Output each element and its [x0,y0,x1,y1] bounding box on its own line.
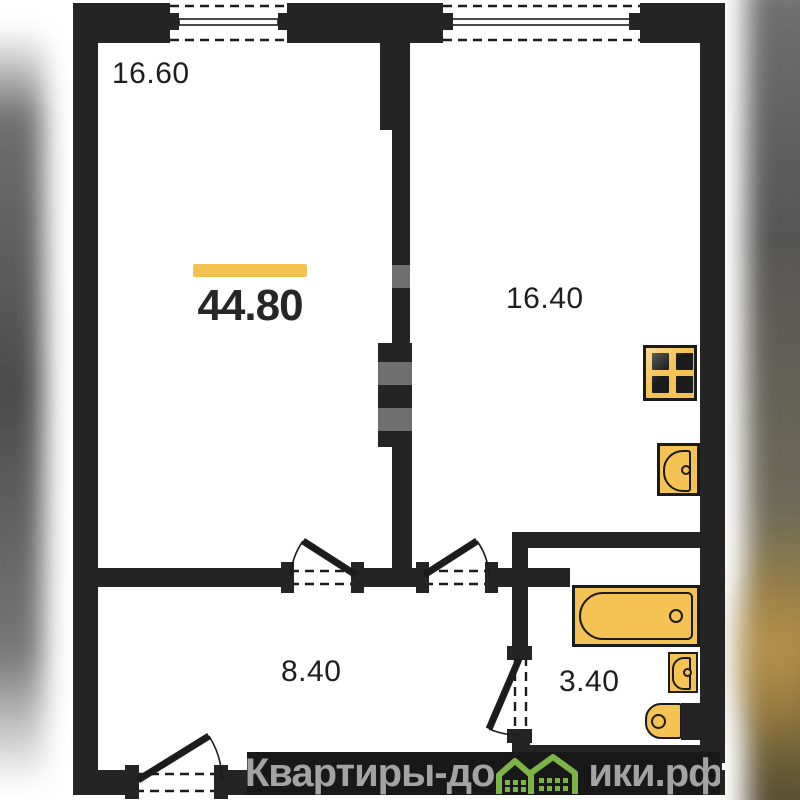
room-area-label: 16.60 [112,57,190,91]
window-icon [166,6,289,40]
entrance-door-icon [125,736,228,799]
window-icon [441,6,641,40]
room-area-label: 8.40 [281,655,341,689]
watermark-text-suffix: ики.рф [588,752,720,795]
door-icon [281,541,364,593]
watermark-text-prefix: Квартиры-до [247,752,494,795]
doors-windows-overlay [0,0,800,800]
total-area-label: 44.80 [181,281,319,331]
door-icon [416,541,498,593]
bathroom-door-icon [489,646,532,743]
room-area-label: 3.40 [559,665,619,699]
room-area-label: 16.40 [506,282,584,316]
watermark-houses-icon [495,754,587,796]
floorplan-canvas: 16.60 16.40 8.40 3.40 44.80 Квартиры-до … [0,0,800,800]
watermark-bar: Квартиры-до ики.рф [247,752,720,795]
total-area-highlight [193,264,307,277]
